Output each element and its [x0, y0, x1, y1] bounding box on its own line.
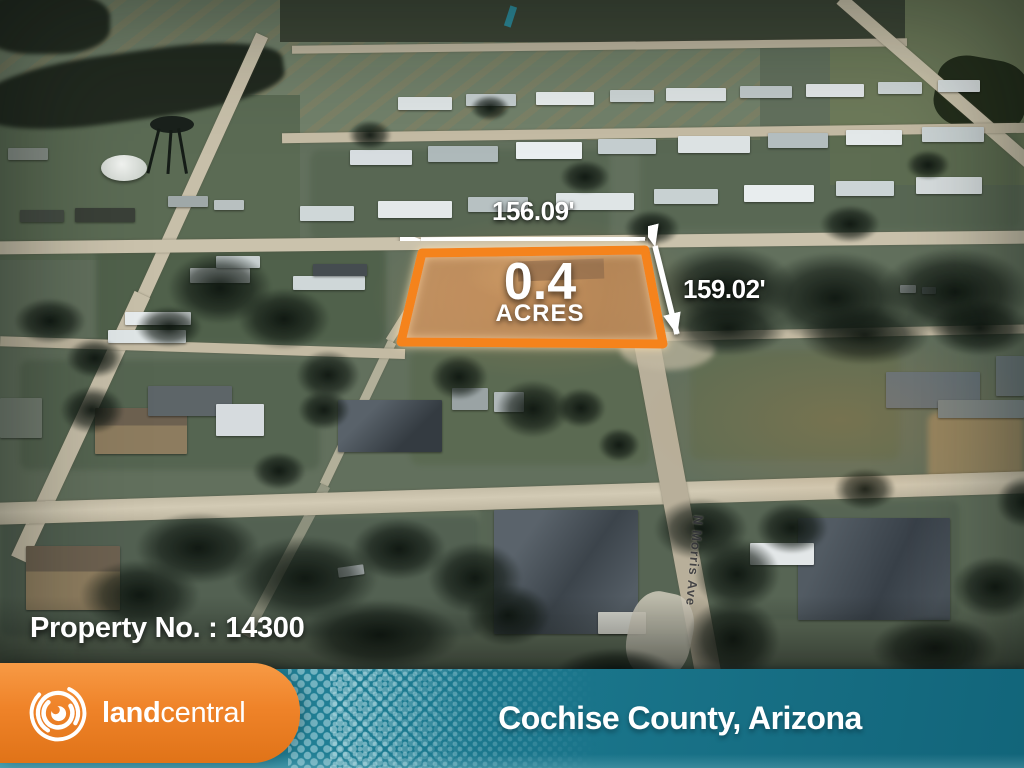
tree [598, 428, 640, 462]
building [350, 150, 412, 165]
field-strip [280, 0, 905, 42]
building [8, 148, 48, 160]
building [536, 92, 594, 105]
building [428, 146, 498, 162]
building [846, 130, 902, 145]
building [678, 136, 750, 153]
brand-word-central: central [160, 697, 245, 729]
building [666, 88, 726, 101]
landcentral-logo-icon [28, 683, 88, 743]
building [168, 196, 208, 207]
tree [298, 390, 350, 430]
water-tank [101, 155, 147, 181]
building [836, 181, 894, 196]
location-title: Cochise County, Arizona [300, 669, 1024, 768]
building [654, 189, 718, 204]
building [740, 86, 792, 98]
tree [66, 338, 124, 378]
building [300, 206, 354, 221]
tree [252, 452, 306, 490]
house [216, 404, 264, 436]
brand-wordmark: landcentral [102, 697, 245, 730]
property-number-label: Property No. : 14300 [30, 612, 304, 645]
building [806, 84, 864, 97]
tree [470, 95, 510, 121]
building [75, 208, 135, 222]
house [338, 400, 442, 452]
aerial-photo [0, 0, 1024, 768]
building [214, 200, 244, 210]
tree [14, 298, 86, 344]
building [938, 80, 980, 92]
building [313, 264, 367, 276]
building [293, 276, 365, 290]
building [516, 142, 582, 159]
brand-word-land: land [102, 697, 160, 729]
house [0, 398, 42, 438]
tree [348, 120, 392, 150]
width-dimension-label: 156.09' [492, 196, 574, 227]
tree [906, 150, 950, 180]
building [768, 133, 828, 148]
tree [238, 288, 330, 350]
depth-dimension-label: 159.02' [683, 274, 765, 305]
tree [560, 160, 610, 194]
parcel-acreage-unit: ACRES [495, 302, 584, 326]
brand-block: landcentral [0, 663, 300, 763]
tree [820, 205, 880, 243]
building [20, 210, 64, 222]
building [744, 185, 814, 202]
listing-image: 156.09' 159.02' 0.4 ACRES N Morris Ave P… [0, 0, 1024, 768]
tree [556, 388, 606, 428]
building [398, 97, 452, 110]
shrub-band [0, 0, 110, 54]
tree [60, 386, 124, 434]
building [610, 90, 654, 102]
building [922, 127, 984, 142]
building [598, 139, 656, 154]
building [878, 82, 922, 94]
